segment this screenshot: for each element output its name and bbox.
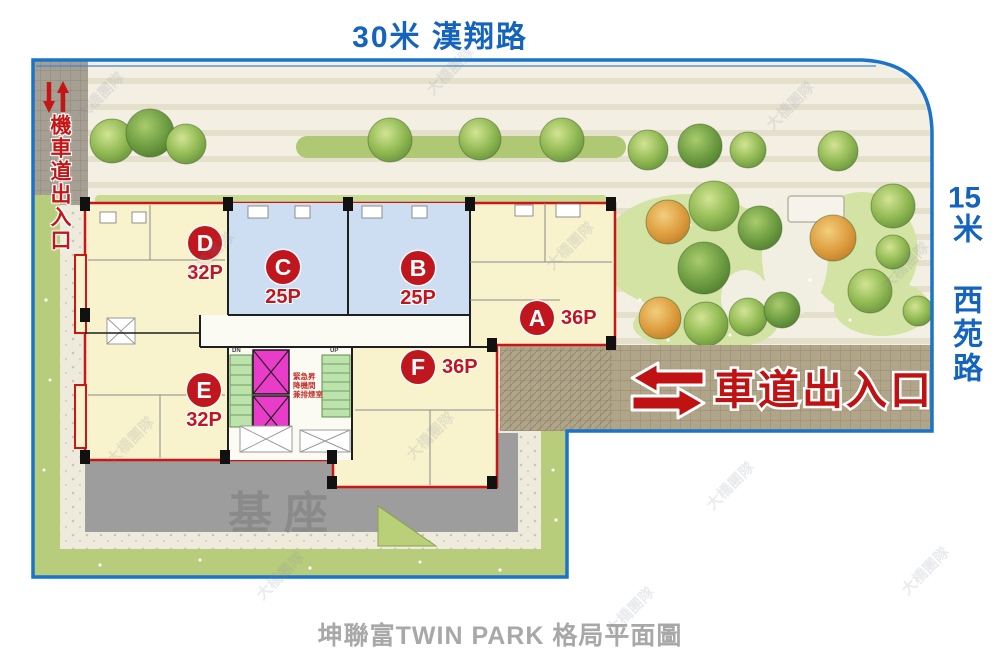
moto-entrance-label: 機車道出入口: [40, 114, 78, 252]
tree-icon: [871, 184, 915, 228]
unit-size-B: 25P: [400, 287, 436, 310]
unit-label-A: A 36P: [520, 301, 597, 335]
road-name-right-text: 米 西苑路: [948, 213, 981, 386]
road-width-number: 15: [948, 183, 981, 213]
drive-entrance: 車道出入口: [632, 363, 934, 418]
corridor: [200, 315, 470, 347]
tree-icon: [678, 124, 722, 168]
unit-label-B: B 25P: [393, 251, 443, 310]
podium-label: 基座: [228, 477, 340, 541]
tree-icon: [684, 302, 728, 346]
site-plan: 車道出入口: [0, 0, 1000, 667]
unit-label-D: D 32P: [180, 226, 230, 285]
unit-label-E: E 32P: [179, 373, 229, 432]
tree-icon: [848, 269, 892, 313]
unit-label-F: F 36P: [401, 350, 478, 384]
tree-icon: [646, 200, 690, 244]
unit-badge-F: F: [401, 350, 435, 384]
road-name-right: 15米 西苑路: [938, 183, 990, 386]
tree-icon: [730, 132, 766, 168]
tree-icon: [166, 124, 206, 164]
drive-entrance-label: 車道出入口: [714, 367, 934, 413]
tree-icon: [639, 297, 681, 339]
tree-icon: [459, 118, 501, 160]
unit-size-D: 32P: [187, 262, 223, 285]
unit-label-C: C 25P: [258, 250, 308, 309]
core-label: 緊急昇 降機間 兼排煙室: [293, 372, 335, 399]
unit-badge-E: E: [187, 373, 221, 407]
stair-icon: [230, 355, 252, 427]
tree-icon: [729, 298, 767, 336]
tree-icon: [738, 206, 782, 250]
core-label-line3: 兼排煙室: [293, 390, 335, 399]
tree-icon: [810, 215, 856, 261]
unit-badge-D: D: [188, 226, 222, 260]
unit-size-C: 25P: [265, 286, 301, 309]
unit-size-E: 32P: [186, 409, 222, 432]
tree-icon: [368, 118, 412, 162]
unit-badge-C: C: [266, 250, 300, 284]
stair-up-label: UP: [330, 348, 338, 354]
balcony-bump: [75, 385, 86, 448]
core-label-line2: 降機間: [293, 381, 335, 390]
plan-caption: 坤聯富TWIN PARK 格局平面圖: [250, 616, 750, 652]
stair-dn-label: DN: [232, 348, 241, 354]
tree-icon: [678, 242, 730, 294]
tree-icon: [689, 181, 739, 231]
tree-icon: [764, 292, 800, 328]
tree-icon: [818, 131, 858, 171]
unit-badge-A: A: [520, 301, 554, 335]
unit-size-A: 36P: [561, 307, 597, 330]
unit-badge-B: B: [401, 251, 435, 285]
tree-icon: [903, 296, 933, 326]
unit-size-F: 36P: [442, 356, 478, 379]
core-label-line1: 緊急昇: [293, 372, 335, 381]
road-name-top: 30米 漢翔路: [275, 12, 605, 56]
elevator-icon: [253, 350, 289, 394]
tree-icon: [876, 235, 910, 269]
tree-icon: [540, 118, 584, 162]
tree-icon: [628, 130, 668, 170]
site-plan-canvas: 車道出入口 30米 漢翔路 15米 西苑路 機車道出入口 D 32P C 25P…: [0, 0, 1000, 667]
